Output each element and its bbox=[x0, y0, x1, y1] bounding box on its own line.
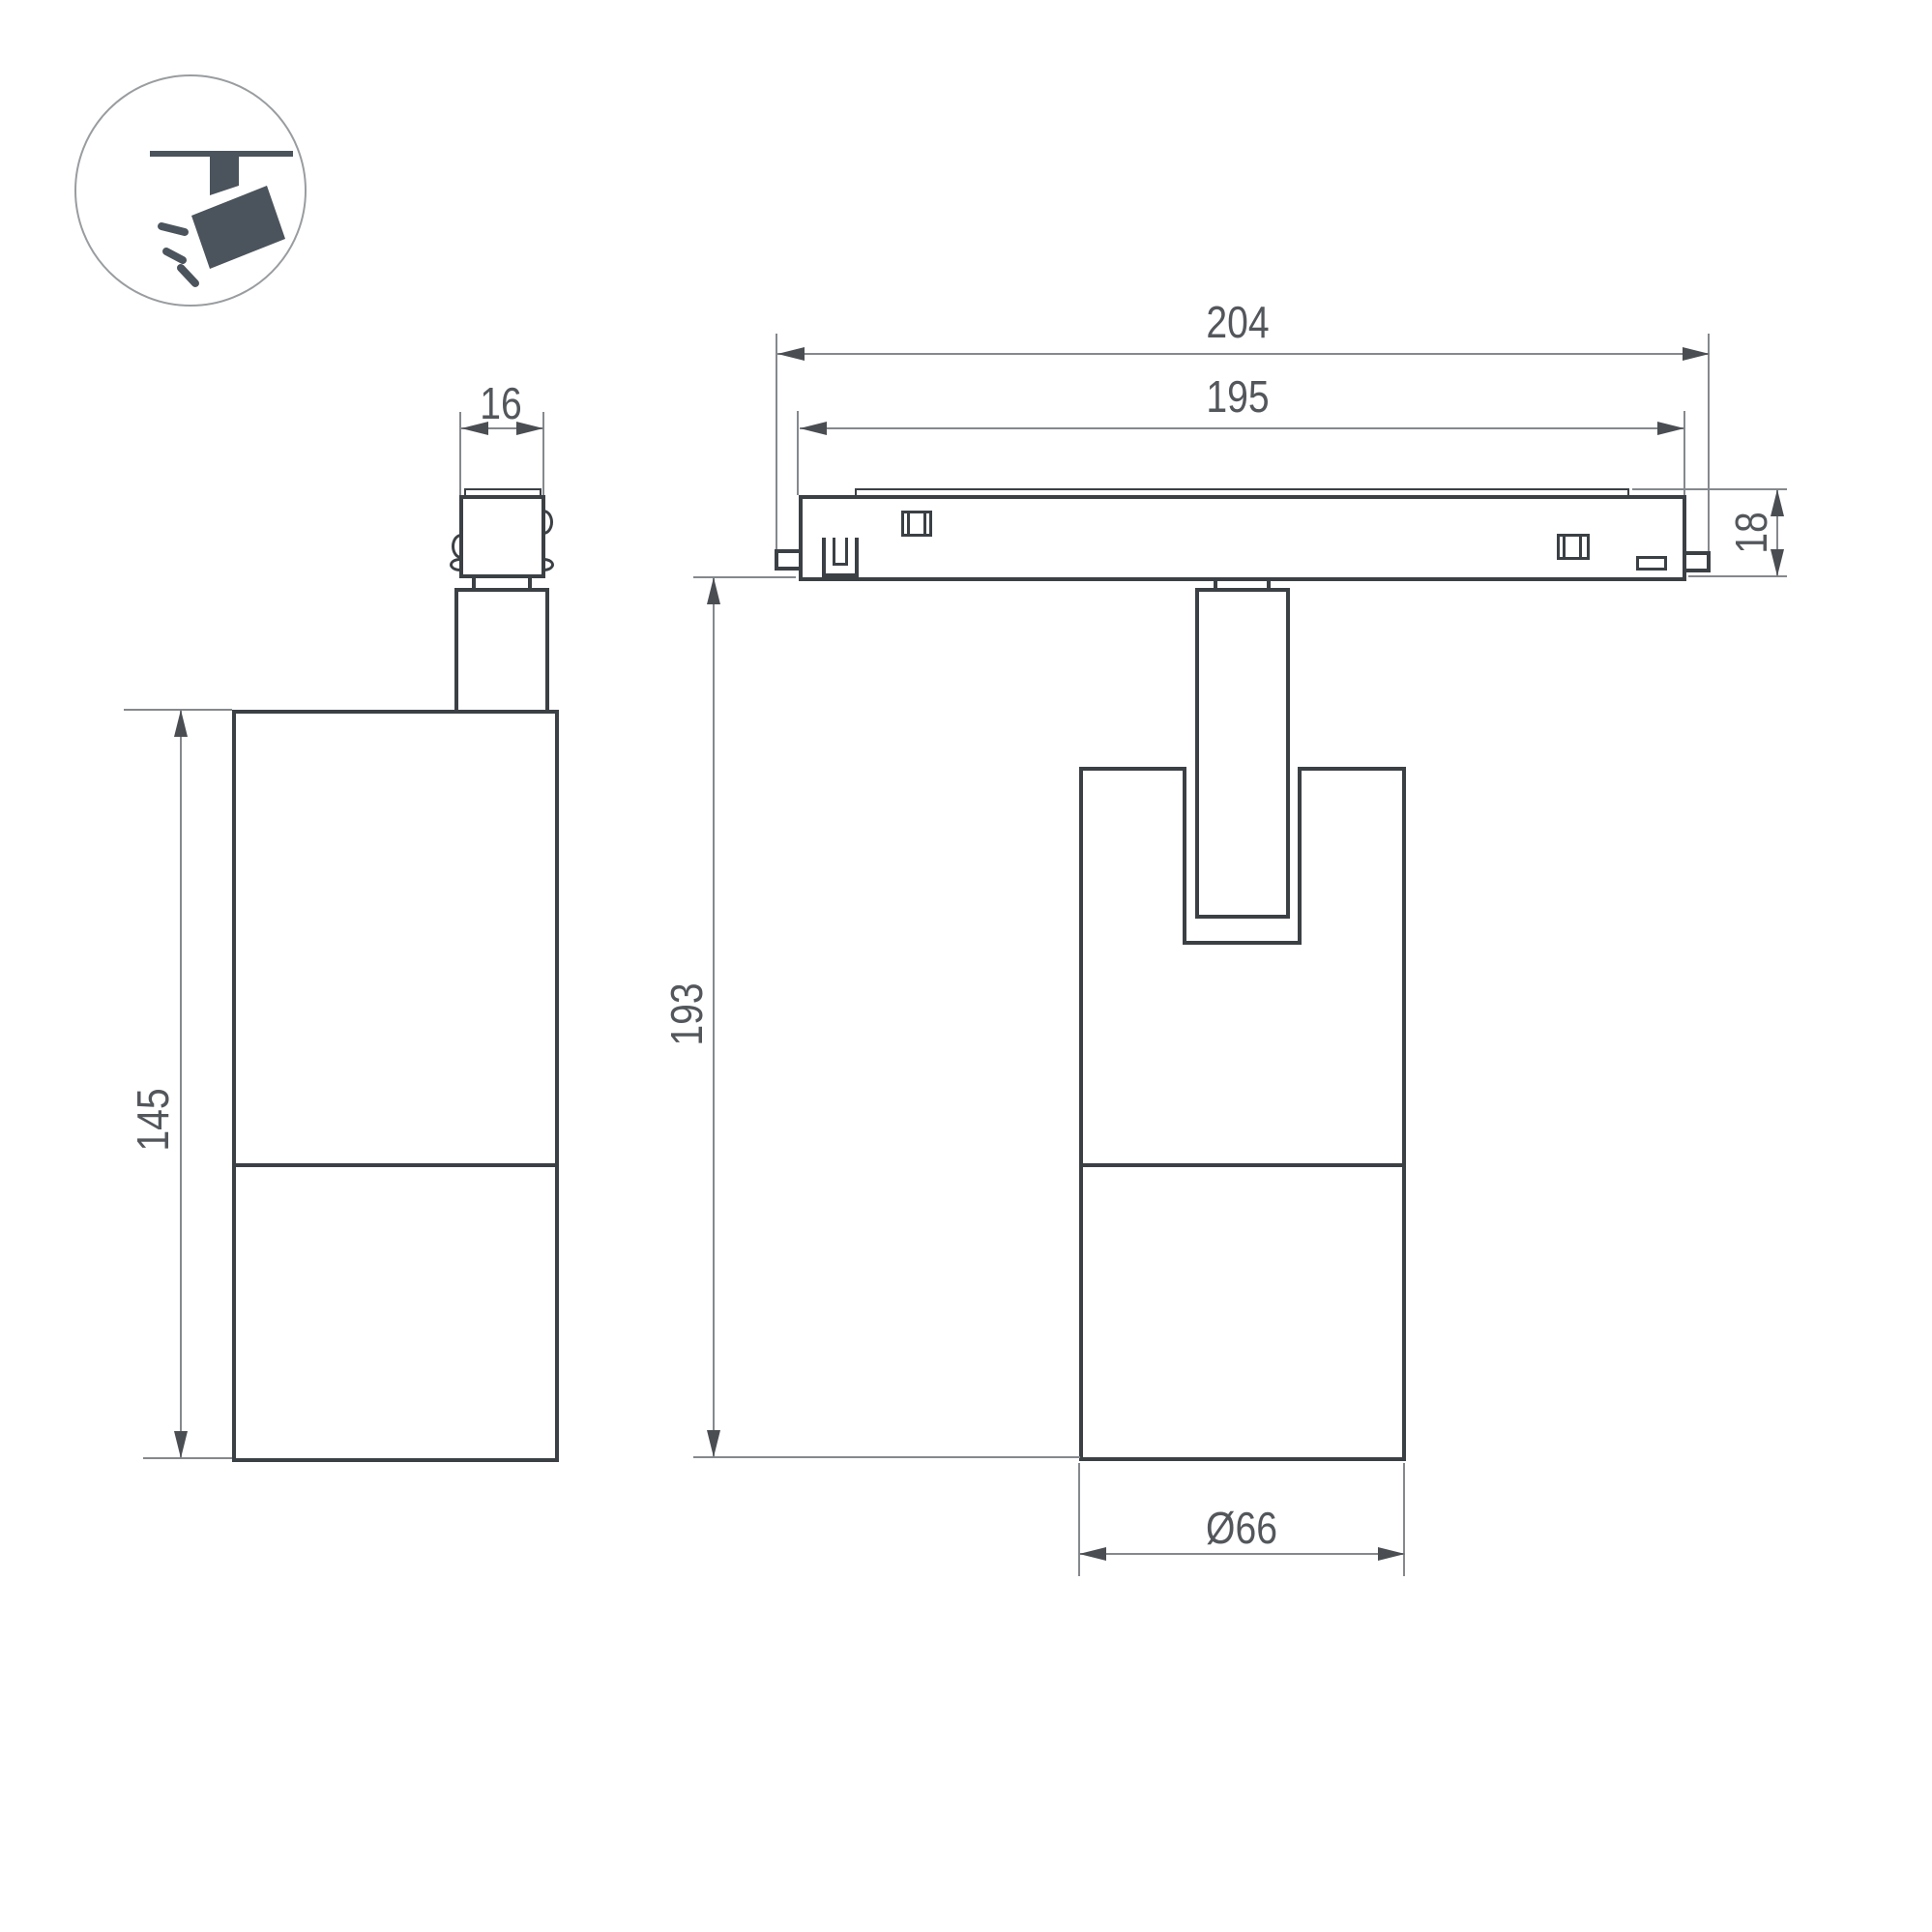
dim-204-label: 204 bbox=[1197, 300, 1279, 344]
dim-193-extension-bottom bbox=[693, 1456, 1080, 1458]
dim-18-extension-top bbox=[1632, 488, 1787, 490]
dim-193-arrow-bottom bbox=[707, 1430, 720, 1457]
front-track-tab-right bbox=[1683, 551, 1711, 572]
front-track-bar bbox=[799, 495, 1686, 581]
dim-195-extension-left bbox=[797, 411, 799, 495]
dim-195-arrow-right bbox=[1657, 422, 1684, 435]
dim-193-line bbox=[713, 577, 715, 1457]
dim-193-label: 193 bbox=[664, 949, 709, 1080]
front-body-seam bbox=[1083, 1163, 1402, 1167]
technical-drawing: 16 145 204 195 bbox=[0, 0, 1932, 1932]
dim-204-arrow-right bbox=[1683, 347, 1710, 361]
dim-66-arrow-right bbox=[1378, 1547, 1405, 1561]
dim-66-line bbox=[1079, 1553, 1405, 1555]
front-track-contact-left bbox=[901, 511, 932, 537]
front-track-contact-right-line2 bbox=[1579, 537, 1582, 557]
front-track-contact-right-line1 bbox=[1563, 537, 1566, 557]
front-view: 204 195 18 bbox=[0, 0, 1932, 1932]
dim-195-line bbox=[800, 427, 1684, 429]
front-track-clip-inner bbox=[833, 538, 848, 566]
dim-195-arrow-left bbox=[800, 422, 827, 435]
front-track-slot bbox=[1636, 556, 1667, 571]
dim-193-arrow-top bbox=[707, 577, 720, 604]
dim-18-label: 18 bbox=[1729, 492, 1773, 574]
dim-204-extension-right bbox=[1708, 334, 1710, 551]
dim-204-arrow-left bbox=[777, 347, 805, 361]
dim-66-arrow-left bbox=[1079, 1547, 1106, 1561]
dim-204-line bbox=[777, 353, 1710, 355]
dim-195-label: 195 bbox=[1197, 374, 1279, 419]
front-stem bbox=[1195, 588, 1290, 919]
front-track-tab-left bbox=[775, 549, 803, 571]
dim-66-label: Ø66 bbox=[1185, 1506, 1300, 1550]
front-track-contact-left-line2 bbox=[923, 513, 926, 534]
dim-204-extension-left bbox=[776, 334, 777, 550]
front-track-contact-left-line1 bbox=[907, 513, 910, 534]
